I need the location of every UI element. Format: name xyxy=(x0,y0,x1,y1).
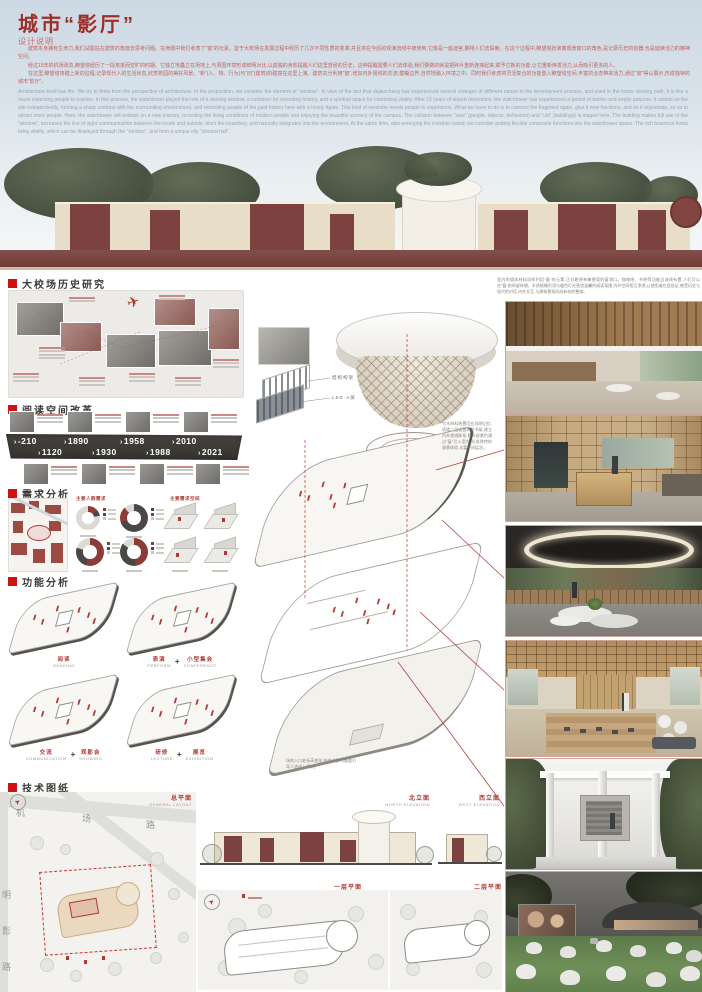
intro-paragraphs: 建筑本身拥有生命力,我们试图站在建筑的角度去思考问题。在命题中我们考虑了“窗”的… xyxy=(18,46,690,88)
wall-segment xyxy=(558,204,616,252)
historic-photo xyxy=(61,323,101,351)
function-plate-perform xyxy=(126,586,238,652)
donut-chart-1 xyxy=(76,506,100,530)
curved-sofa xyxy=(550,616,580,626)
section-header-history: 大校场历史研究 xyxy=(8,276,106,291)
timeline-photo xyxy=(196,464,220,484)
render-photo-circular-hall xyxy=(505,525,702,637)
column xyxy=(546,773,554,861)
microtext-block xyxy=(129,371,155,383)
historic-photo xyxy=(155,299,195,325)
glowing-ring-ceiling xyxy=(524,530,694,570)
microtext-block xyxy=(175,375,201,387)
historic-photo xyxy=(209,309,239,349)
function-caption: 研修LECTURE + 展览EXHIBITION xyxy=(126,748,238,761)
sunken-steps xyxy=(546,713,656,753)
wood-slat-ceiling xyxy=(506,302,702,348)
lit-interior-band xyxy=(614,920,698,930)
render-photo-cafe xyxy=(505,301,702,415)
stair-steps xyxy=(586,801,622,835)
section-title-history: 大校场历史研究 xyxy=(22,276,106,291)
function-plate-communication xyxy=(8,678,120,744)
iso-room-diagram xyxy=(166,504,198,532)
intro-p1: 建筑本身拥有生命力,我们试图站在建筑的角度去思考问题。在命题中我们考虑了“窗”的… xyxy=(18,46,690,62)
timeline-photo xyxy=(24,464,48,484)
ground-line xyxy=(0,267,702,270)
legend xyxy=(103,508,116,520)
microtext-block xyxy=(39,345,65,361)
render-photo-courtyard xyxy=(505,758,702,870)
render-photo-reading-room xyxy=(505,640,702,757)
function-plate-lecture xyxy=(126,678,238,744)
axon-annotation-1: 竹木材料装置回应场地记忆,塔楼二层设置环形书架,建立内外视线联系,将外部景色通过… xyxy=(442,421,492,451)
first-floor-plan: ➤ xyxy=(198,890,388,990)
site-highlight xyxy=(27,525,51,541)
north-elevation-label: 北立面NORTH ELEVATION xyxy=(340,793,430,807)
function-caption: 交流COMMUNICATION + 观影会SHOWING xyxy=(8,748,120,761)
figure-ground-map xyxy=(8,498,68,572)
road-label-char: 影 xyxy=(2,924,13,937)
window-right xyxy=(670,667,700,705)
circular-bookshelf xyxy=(506,590,702,604)
counter xyxy=(512,362,596,382)
donut-chart-4 xyxy=(120,538,148,566)
microtext-block xyxy=(13,371,39,383)
timeline-photo xyxy=(82,464,106,484)
iso-room-diagram xyxy=(206,504,238,532)
microtext-block xyxy=(51,464,77,476)
legend xyxy=(151,508,164,520)
microtext-block xyxy=(223,464,249,476)
function-plate-reading xyxy=(8,586,120,652)
iso-room-diagram xyxy=(166,538,198,566)
egg-chairs-row xyxy=(516,964,536,979)
historic-photo xyxy=(107,335,155,367)
wall-segment xyxy=(494,210,528,252)
presentation-board: 城市“影厅” 设计说明 建筑本身拥有生命力,我们试图站在建筑的角度去思考问题。在… xyxy=(0,0,702,992)
microtext-block xyxy=(159,293,185,302)
lattice-dome xyxy=(356,356,476,428)
iso-caption xyxy=(212,570,228,572)
bench xyxy=(590,938,598,944)
section-bullet-icon xyxy=(8,279,17,288)
microtext-block xyxy=(37,412,63,424)
legend xyxy=(151,542,164,554)
function-caption: 表演PERFORM + 小型集会CONFERENCE xyxy=(126,655,238,668)
cushions xyxy=(564,727,570,731)
donut-caption xyxy=(126,570,142,572)
timeline-photo xyxy=(126,412,150,432)
section-bullet-icon xyxy=(8,489,17,498)
window-greenery xyxy=(640,351,702,383)
north-arrow-icon: ➤ xyxy=(10,794,26,810)
column xyxy=(652,773,660,861)
west-elevation-drawing xyxy=(438,820,502,868)
dark-sofa xyxy=(652,737,696,749)
rooftop-trees xyxy=(404,152,472,186)
person xyxy=(612,456,618,474)
intro-p3: 在这里,瞭望塔将踏上新的征程,记录现代人的生活状态,欣赏校园的美好风景。“新”(… xyxy=(18,71,690,87)
microtext-block xyxy=(153,412,179,424)
plan-round-room xyxy=(464,920,490,946)
donut-caption xyxy=(82,570,98,572)
microtext-block xyxy=(109,464,135,476)
demand-group-left-label: 主要人群需求 xyxy=(76,496,106,502)
demand-group-right-label: 主要需求空间 xyxy=(170,496,200,502)
right-intro-note: 室内的墙体材料同样利用“窗”的元素,正对着原有瞭望塔的窗洞口。咖啡吧、书吧等功能… xyxy=(497,277,700,295)
structure-label: 结构构架 xyxy=(332,375,354,381)
airplane-icon: ✈ xyxy=(125,291,143,312)
person xyxy=(610,813,615,829)
path xyxy=(536,857,676,869)
elevation-tower-roof xyxy=(352,810,396,824)
reference-photo xyxy=(258,327,310,365)
window-dark xyxy=(534,442,568,488)
function-caption: 阅读READING xyxy=(8,655,120,668)
iso-room-diagram xyxy=(206,538,238,566)
section-bullet-icon xyxy=(8,577,17,586)
white-chairs xyxy=(658,715,671,728)
axon-annotation-2: 场地入口处标高变化,结合台阶与坡道引导人流进入建筑。 xyxy=(286,758,356,770)
intro-p2: 经过15年的机场改造,瞭望塔经历了一段荒芜而空旷的时期。它独立地矗立在场地上,与… xyxy=(18,63,690,71)
donut-caption xyxy=(80,535,96,537)
curved-sofa xyxy=(590,614,638,628)
road-label-char: 路 xyxy=(146,818,157,831)
person xyxy=(572,582,577,598)
window-left xyxy=(508,669,538,705)
iso-caption xyxy=(172,570,188,572)
wall-segment xyxy=(330,214,354,252)
egg-chairs-row xyxy=(526,942,542,954)
road-label-char: 明 xyxy=(2,888,13,901)
legend xyxy=(107,542,120,554)
north-arrow-icon: ➤ xyxy=(204,894,220,910)
timeline-year: ›2010 xyxy=(172,436,197,446)
section-bullet-icon xyxy=(8,783,17,792)
historic-photo xyxy=(159,331,211,365)
led-label: LED·A屏 xyxy=(332,395,356,401)
plan-round-room xyxy=(326,920,358,952)
timeline-photo xyxy=(184,412,208,432)
site-plan: 机 场 路 明 影 路 ➤ xyxy=(0,792,196,992)
microtext-block xyxy=(167,464,193,476)
timeline-year: ›1890 xyxy=(64,436,89,446)
timeline-photo xyxy=(68,412,92,432)
road-label-char: 场 xyxy=(82,812,93,825)
wall-segment xyxy=(250,204,304,252)
plant xyxy=(588,598,602,610)
intro-english: Architecture itself has life. We try to … xyxy=(18,88,688,136)
donut-chart-3 xyxy=(76,538,104,566)
donut-chart-2 xyxy=(120,504,148,532)
page-title: 城市“影厅” xyxy=(18,8,136,37)
wall-segment xyxy=(70,204,110,252)
wall-segment xyxy=(638,210,666,252)
timeline-year: ›1120 xyxy=(38,447,62,457)
historic-photo xyxy=(17,303,63,335)
hero-render: 城市“影厅” 设计说明 建筑本身拥有生命力,我们试图站在建筑的角度去思考问题。在… xyxy=(0,0,702,272)
site-plan-label: 总平面GENERAL LAYOUT xyxy=(130,793,192,807)
tower-footprint xyxy=(116,882,140,906)
timeline-year: ›1958 xyxy=(120,436,145,446)
timeline-year: ›1930 xyxy=(92,447,117,457)
timeline-photo xyxy=(10,412,34,432)
podium-band xyxy=(0,250,702,267)
table xyxy=(606,384,632,392)
movie-screen xyxy=(518,904,576,938)
west-elevation-label: 西立面WEST ELEVATION xyxy=(432,793,500,807)
render-photo-lawn-cinema xyxy=(505,871,702,992)
microtext-block xyxy=(79,375,105,387)
road-label-char: 路 xyxy=(2,960,13,973)
timeline-year: ›-210 xyxy=(14,436,37,446)
timeline-year: ›2021 xyxy=(198,447,223,457)
microtext-block xyxy=(213,357,239,369)
wall-segment xyxy=(150,210,180,252)
microtext-block xyxy=(69,295,95,304)
round-pavilion xyxy=(670,196,702,228)
history-collage: ✈ xyxy=(8,290,244,398)
donut-caption xyxy=(126,536,142,538)
counter xyxy=(662,474,702,496)
timeline-band: ›-210 ›1890 ›1958 ›2010 ›1120 ›1930 ›198… xyxy=(6,434,242,460)
timeline-year: ›1988 xyxy=(146,447,171,457)
microtext-block xyxy=(211,412,237,424)
second-floor-plan xyxy=(390,890,502,990)
person xyxy=(622,693,629,711)
north-elevation-drawing xyxy=(200,810,432,868)
timeline-photo xyxy=(140,464,164,484)
table xyxy=(656,392,680,400)
render-photo-shelf-room xyxy=(505,415,702,522)
microtext-block xyxy=(95,412,121,424)
wood-island xyxy=(576,472,632,506)
